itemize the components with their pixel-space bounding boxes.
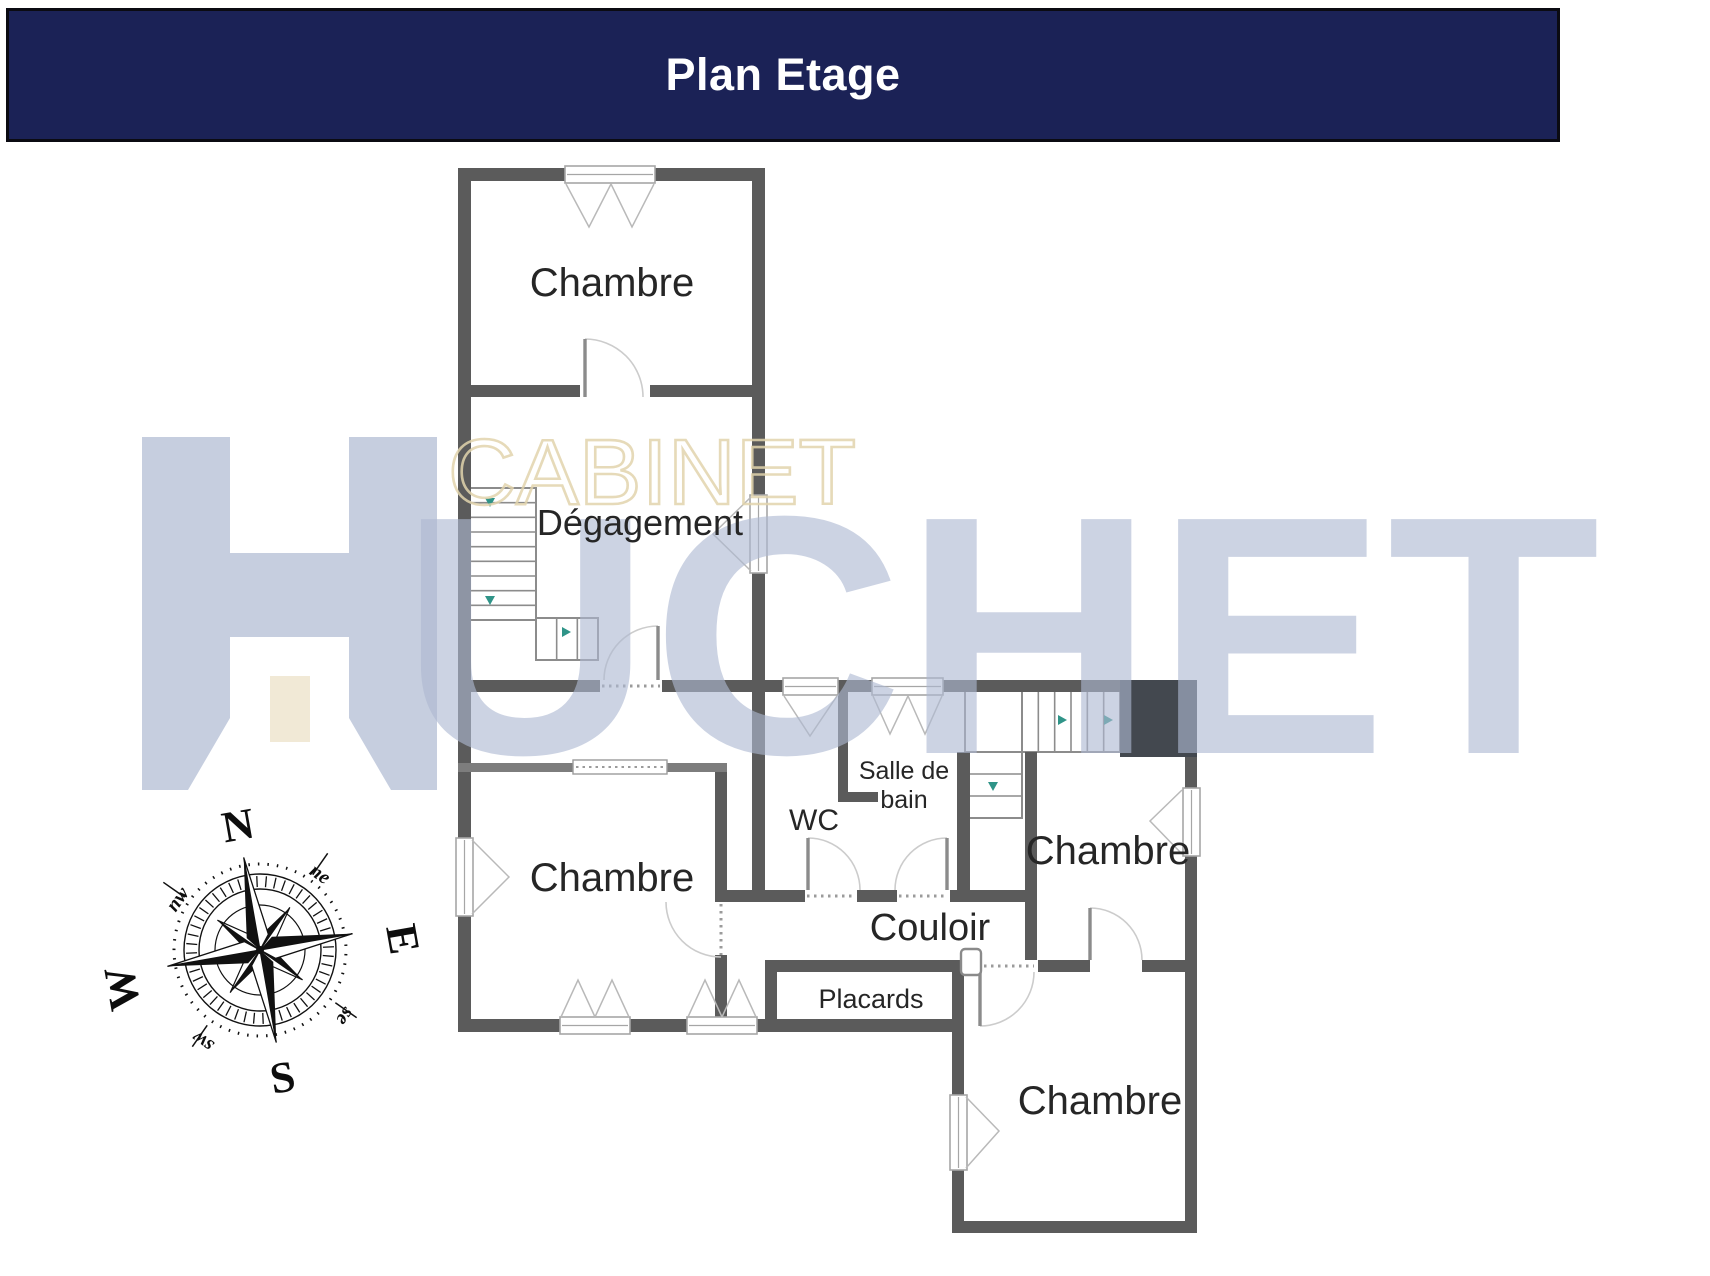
window-sash [561, 980, 595, 1017]
room-couloir: Couloir [870, 907, 991, 949]
window-sash [611, 184, 654, 227]
wall-segment [857, 890, 897, 902]
compass-label-ne: ne [305, 859, 334, 889]
logo-door [270, 676, 310, 742]
compass-label-s: S [266, 1051, 299, 1104]
compass-label-e: E [376, 920, 429, 957]
wall-segment [630, 1019, 687, 1032]
page-title: Plan Etage [665, 49, 900, 101]
window-sash [595, 980, 629, 1017]
door-swing-arc [980, 972, 1034, 1026]
door-swing-arc [585, 339, 643, 397]
compass-label-w: W [94, 963, 150, 1015]
room-chambre-nord: Chambre [530, 261, 695, 305]
wall-segment [715, 955, 727, 1022]
compass-rose: NESWneseswnw [69, 772, 451, 1130]
wall-segment [458, 385, 580, 397]
room-chambre-sud: Chambre [1018, 1079, 1183, 1123]
floor-plan-drawing: CABINETUCHETChambreDégagementChambreWCSa… [0, 0, 1710, 1276]
wall-segment [458, 916, 471, 1031]
wall-segment [1038, 960, 1090, 972]
compass-label-se: se [331, 1003, 359, 1030]
wall-segment [757, 1019, 964, 1032]
title-bar: Plan Etage [6, 8, 1560, 142]
compass-label-nw: nw [162, 882, 194, 915]
wall-segment [952, 1221, 1197, 1233]
wall-segment [765, 960, 975, 972]
room-salle-de-bain-l1: Salle de [859, 757, 949, 785]
room-chambre-ouest: Chambre [530, 856, 695, 900]
window-sash [566, 184, 611, 227]
room-degagement: Dégagement [537, 502, 743, 543]
wall-segment [1185, 856, 1197, 1233]
door-swing-arc [666, 902, 721, 957]
wall-segment [765, 972, 777, 1022]
wall-segment [1142, 960, 1197, 972]
wall-segment [715, 890, 805, 902]
wall-segment [952, 972, 964, 1095]
floor-plan-page: CABINETUCHETChambreDégagementChambreWCSa… [0, 0, 1710, 1276]
compass-label-n: N [218, 798, 258, 852]
room-salle-de-bain-l2: bain [880, 786, 927, 814]
door-swing-arc [895, 838, 947, 890]
window-sash [472, 840, 509, 914]
radiator-symbol [961, 949, 981, 975]
window-sash [722, 980, 756, 1017]
window-sash [966, 1097, 999, 1168]
room-wc: WC [789, 804, 839, 837]
wall-segment [950, 890, 1030, 902]
compass-label-sw: sw [187, 1026, 218, 1057]
room-chambre-est: Chambre [1026, 829, 1191, 873]
door-swing-arc [1090, 908, 1142, 960]
room-placards: Placards [818, 984, 923, 1014]
wall-segment [458, 1019, 560, 1032]
wall-segment [650, 385, 765, 397]
door-swing-arc [808, 838, 860, 890]
